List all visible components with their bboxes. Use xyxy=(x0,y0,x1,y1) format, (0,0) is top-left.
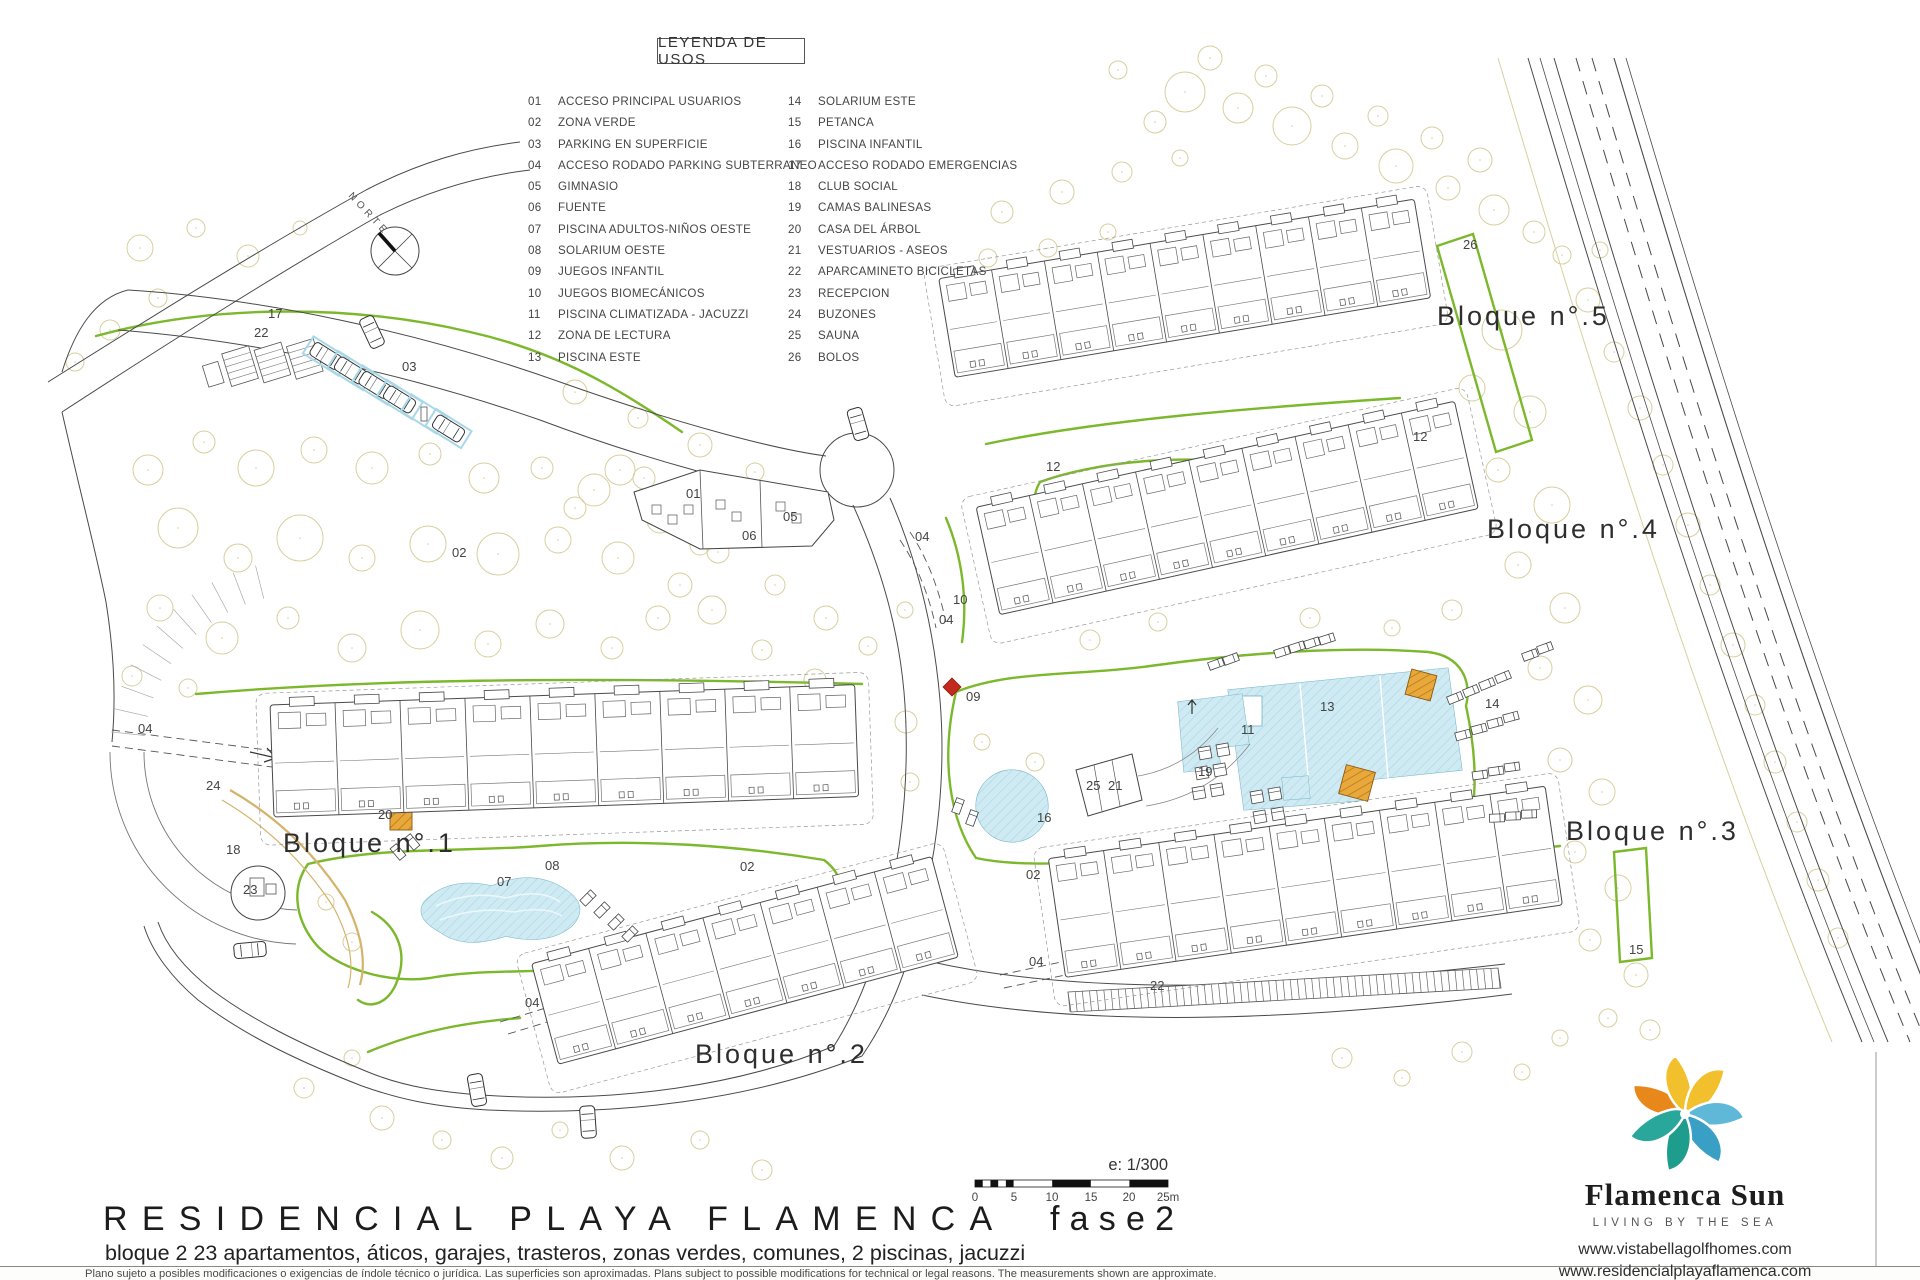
plan-marker-04: 04 xyxy=(138,721,152,736)
plan-marker-16: 16 xyxy=(1037,810,1051,825)
lounger-icon xyxy=(1479,677,1496,690)
brand-logo: Flamenca Sun LIVING BY THE SEA www.vista… xyxy=(1530,1058,1840,1280)
highway-line xyxy=(1528,58,1862,1042)
highway-line xyxy=(1592,58,1920,1042)
site-plan-page: NORTEBloque n°.1Bloque n°.2Bloque n°.3Bl… xyxy=(0,0,1920,1280)
highway-line xyxy=(1614,58,1920,1042)
legend-item-18: 18CLUB SOCIAL xyxy=(788,180,1017,201)
lounger-icon xyxy=(1304,637,1321,649)
bali-bed-icon xyxy=(1198,746,1212,760)
legend-item-22: 22APARCAMINETO BICICLETAS xyxy=(788,265,1017,286)
legend-item-num: 01 xyxy=(528,95,558,116)
road-edge xyxy=(366,142,520,190)
lounger-icon xyxy=(1471,723,1488,735)
motorbike-icon xyxy=(421,407,427,421)
legend-item-label: PISCINA ESTE xyxy=(558,351,641,372)
legend-item-num: 10 xyxy=(528,287,558,308)
plan-marker-04: 04 xyxy=(915,529,929,544)
legend-item-label: PETANCA xyxy=(818,116,874,137)
lounger-icon xyxy=(1505,812,1520,821)
lounger-icon xyxy=(580,890,596,906)
plan-marker-21: 21 xyxy=(1108,778,1122,793)
brand-url-2[interactable]: www.residencialplayaflamenca.com xyxy=(1530,1261,1840,1280)
plan-marker-08: 08 xyxy=(545,858,559,873)
plan-marker-09: 09 xyxy=(966,689,980,704)
legend-item-07: 07PISCINA ADULTOS-NIÑOS OESTE xyxy=(528,223,817,244)
plan-marker-04: 04 xyxy=(939,612,953,627)
scale-tick: 5 xyxy=(1011,1192,1017,1204)
legend-item-num: 07 xyxy=(528,223,558,244)
lounger-icon xyxy=(594,902,610,918)
lounger-icon xyxy=(1495,670,1512,683)
legend-item-11: 11PISCINA CLIMATIZADA - JACUZZI xyxy=(528,308,817,329)
legend-item-label: JUEGOS INFANTIL xyxy=(558,265,664,286)
road-edge xyxy=(62,412,114,742)
legend-item-25: 25SAUNA xyxy=(788,329,1017,350)
brand-name: Flamenca Sun xyxy=(1530,1177,1840,1213)
plan-marker-20: 20 xyxy=(378,807,392,822)
project-subtitle: bloque 2 23 apartamentos, áticos, garaje… xyxy=(105,1241,1025,1266)
plan-marker-01: 01 xyxy=(686,486,700,501)
plan-marker-14: 14 xyxy=(1485,696,1499,711)
legend-item-num: 19 xyxy=(788,201,818,222)
green-zone-boundary xyxy=(368,1018,520,1052)
legend-item-num: 05 xyxy=(528,180,558,201)
legend-item-16: 16PISCINA INFANTIL xyxy=(788,138,1017,159)
legend-item-03: 03PARKING EN SUPERFICIE xyxy=(528,138,817,159)
car-icon xyxy=(846,407,869,442)
legend-item-label: CLUB SOCIAL xyxy=(818,180,898,201)
roundabout xyxy=(820,433,894,507)
garage-ramp xyxy=(910,532,946,622)
bali-bed-icon xyxy=(1253,810,1267,824)
legend-item-label: APARCAMINETO BICICLETAS xyxy=(818,265,987,286)
project-phase: fase2 xyxy=(1050,1200,1184,1239)
legend-item-label: VESTUARIOS - ASEOS xyxy=(818,244,948,265)
legend-item-num: 08 xyxy=(528,244,558,265)
legend-item-05: 05GIMNASIO xyxy=(528,180,817,201)
lounger-icon xyxy=(1503,711,1520,723)
legend-item-num: 18 xyxy=(788,180,818,201)
bali-bed-icon xyxy=(1213,763,1227,777)
plan-marker-04: 04 xyxy=(1029,954,1043,969)
block-label: Bloque n°.1 xyxy=(283,828,456,858)
lounger-icon xyxy=(1319,633,1336,645)
legend-item-num: 11 xyxy=(528,308,558,329)
plan-marker-10: 10 xyxy=(953,592,967,607)
legend-item-label: RECEPCION xyxy=(818,287,890,308)
legend-item-20: 20CASA DEL ÁRBOL xyxy=(788,223,1017,244)
brand-url-1[interactable]: www.vistabellagolfhomes.com xyxy=(1530,1239,1840,1261)
legend-item-label: GIMNASIO xyxy=(558,180,618,201)
plan-marker-15: 15 xyxy=(1629,942,1643,957)
legend-item-label: ACCESO PRINCIPAL USUARIOS xyxy=(558,95,741,116)
legend-item-13: 13PISCINA ESTE xyxy=(528,351,817,372)
legend-item-06: 06FUENTE xyxy=(528,201,817,222)
block-label: Bloque n°.5 xyxy=(1437,301,1610,331)
legend-item-label: ACCESO RODADO EMERGENCIAS xyxy=(818,159,1017,180)
legend-item-num: 23 xyxy=(788,287,818,308)
building-block-1 xyxy=(256,672,874,845)
bali-bed-icon xyxy=(1268,787,1282,801)
legend-item-label: PISCINA INFANTIL xyxy=(818,138,923,159)
block-label: Bloque n°.3 xyxy=(1566,816,1739,846)
legend-column-2: 14SOLARIUM ESTE15PETANCA16PISCINA INFANT… xyxy=(788,95,1017,372)
north-arrow-icon: NORTE xyxy=(346,191,419,275)
legend-item-17: 17ACCESO RODADO EMERGENCIAS xyxy=(788,159,1017,180)
legend-item-num: 02 xyxy=(528,116,558,137)
project-title: RESIDENCIAL PLAYA FLAMENCA xyxy=(103,1200,1006,1239)
bali-bed-icon xyxy=(1216,743,1230,757)
legend-item-num: 25 xyxy=(788,329,818,350)
plan-marker-13: 13 xyxy=(1320,699,1334,714)
legend-item-label: PISCINA CLIMATIZADA - JACUZZI xyxy=(558,308,749,329)
car-icon xyxy=(579,1106,596,1139)
legend-item-label: BOLOS xyxy=(818,351,859,372)
car-icon xyxy=(358,314,385,349)
legend-item-num: 15 xyxy=(788,116,818,137)
legend-item-num: 26 xyxy=(788,351,818,372)
plan-marker-02: 02 xyxy=(1026,867,1040,882)
car-icon xyxy=(382,385,417,415)
legend-item-02: 02ZONA VERDE xyxy=(528,116,817,137)
plan-marker-11: 11 xyxy=(1241,722,1255,737)
legend-item-num: 13 xyxy=(528,351,558,372)
legend-item-10: 10JUEGOS BIOMECÁNICOS xyxy=(528,287,817,308)
lounger-icon xyxy=(966,810,979,827)
legend-item-label: FUENTE xyxy=(558,201,606,222)
lounger-icon xyxy=(1274,646,1291,658)
car-icon xyxy=(467,1073,487,1107)
plan-marker-03: 03 xyxy=(402,359,416,374)
legend-item-19: 19CAMAS BALINESAS xyxy=(788,201,1017,222)
legend-item-num: 17 xyxy=(788,159,818,180)
legend-item-21: 21VESTUARIOS - ASEOS xyxy=(788,244,1017,265)
reception-building xyxy=(231,866,285,920)
plan-marker-18: 18 xyxy=(226,842,240,857)
legend-item-label: CASA DEL ÁRBOL xyxy=(818,223,921,244)
building-block-4 xyxy=(960,387,1498,646)
legend-item-14: 14SOLARIUM ESTE xyxy=(788,95,1017,116)
plan-marker-12: 12 xyxy=(1413,429,1427,444)
lounger-icon xyxy=(1537,642,1554,655)
legend-item-12: 12ZONA DE LECTURA xyxy=(528,329,817,350)
legend-item-label: CAMAS BALINESAS xyxy=(818,201,931,222)
lounger-icon xyxy=(1522,649,1539,662)
legend-item-label: ZONA DE LECTURA xyxy=(558,329,671,350)
garage-ramp xyxy=(900,540,936,628)
lounger-icon xyxy=(1472,770,1488,780)
legend-title: LEYENDA DE USOS xyxy=(658,34,804,68)
bali-bed-icon xyxy=(1192,786,1206,800)
legend-item-num: 16 xyxy=(788,138,818,159)
green-zone-boundary xyxy=(358,912,401,1004)
legend-item-01: 01ACCESO PRINCIPAL USUARIOS xyxy=(528,95,817,116)
bali-bed-icon xyxy=(1271,807,1285,821)
legend-item-label: JUEGOS BIOMECÁNICOS xyxy=(558,287,705,308)
plan-marker-19: 19 xyxy=(1198,764,1212,779)
legend-item-num: 12 xyxy=(528,329,558,350)
legend-item-09: 09JUEGOS INFANTIL xyxy=(528,265,817,286)
lounger-icon xyxy=(1488,766,1504,776)
flamenca-sun-flower-icon xyxy=(1620,1058,1750,1170)
legend-column-1: 01ACCESO PRINCIPAL USUARIOS02ZONA VERDE0… xyxy=(528,95,817,372)
legend-item-label: PARKING EN SUPERFICIE xyxy=(558,138,708,159)
lounger-icon xyxy=(1223,653,1240,666)
legend-item-label: ACCESO RODADO PARKING SUBTERRANEO xyxy=(558,159,817,180)
plan-marker-05: 05 xyxy=(783,509,797,524)
legend-item-label: PISCINA ADULTOS-NIÑOS OESTE xyxy=(558,223,751,244)
entrance-gym-building xyxy=(634,470,834,549)
plan-marker-02: 02 xyxy=(740,859,754,874)
legend-item-label: ZONA VERDE xyxy=(558,116,636,137)
legend-item-label: SOLARIUM ESTE xyxy=(818,95,916,116)
brand-tagline: LIVING BY THE SEA xyxy=(1530,1217,1840,1229)
bali-bed-icon xyxy=(1250,790,1264,804)
lounger-icon xyxy=(1455,729,1472,741)
lounger-icon xyxy=(1504,762,1520,772)
plan-marker-22: 22 xyxy=(254,325,268,340)
legend-item-num: 14 xyxy=(788,95,818,116)
legend-item-num: 24 xyxy=(788,308,818,329)
plan-marker-02: 02 xyxy=(452,545,466,560)
legend-item-num: 04 xyxy=(528,159,558,180)
plan-marker-26: 26 xyxy=(1463,237,1477,252)
legend-item-num: 20 xyxy=(788,223,818,244)
plan-marker-12: 12 xyxy=(1046,459,1060,474)
lounger-icon xyxy=(1489,814,1504,823)
lounger-icon xyxy=(1463,684,1480,697)
legend-item-label: BUZONES xyxy=(818,308,876,329)
legend-item-num: 22 xyxy=(788,265,818,286)
scale-label: e: 1/300 xyxy=(1108,1156,1168,1174)
legend-title-box: LEYENDA DE USOS xyxy=(657,38,805,64)
legend-item-24: 24BUZONES xyxy=(788,308,1017,329)
car-icon xyxy=(431,414,466,444)
playground-icon xyxy=(943,678,961,696)
lounger-icon xyxy=(1487,717,1504,729)
lounger-icon xyxy=(608,914,624,930)
legend-item-08: 08SOLARIUM OESTE xyxy=(528,244,817,265)
plan-marker-22: 22 xyxy=(1150,978,1164,993)
legend-item-04: 04ACCESO RODADO PARKING SUBTERRANEO xyxy=(528,159,817,180)
plan-marker-25: 25 xyxy=(1086,778,1100,793)
legend-item-26: 26BOLOS xyxy=(788,351,1017,372)
legend-item-label: SOLARIUM OESTE xyxy=(558,244,665,265)
highway-line xyxy=(1576,58,1910,1042)
plan-marker-24: 24 xyxy=(206,778,220,793)
plan-marker-23: 23 xyxy=(243,882,257,897)
highway-line xyxy=(1554,58,1888,1042)
car-icon xyxy=(233,941,266,959)
legend-item-15: 15PETANCA xyxy=(788,116,1017,137)
plan-marker-06: 06 xyxy=(742,528,756,543)
road-edge xyxy=(380,170,530,215)
legend-item-num: 21 xyxy=(788,244,818,265)
legend-item-num: 06 xyxy=(528,201,558,222)
legend-item-num: 09 xyxy=(528,265,558,286)
bali-bed-icon xyxy=(1210,783,1224,797)
legend-item-23: 23RECEPCION xyxy=(788,287,1017,308)
scale-bar: 0510152025me: 1/300 xyxy=(972,1156,1179,1204)
legend-item-num: 03 xyxy=(528,138,558,159)
block-label: Bloque n°.2 xyxy=(695,1039,868,1069)
plan-marker-07: 07 xyxy=(497,874,511,889)
plan-marker-17: 17 xyxy=(268,306,282,321)
plan-marker-04: 04 xyxy=(525,995,539,1010)
lounger-icon xyxy=(1521,810,1536,819)
legend-item-label: SAUNA xyxy=(818,329,859,350)
block-label: Bloque n°.4 xyxy=(1487,514,1660,544)
